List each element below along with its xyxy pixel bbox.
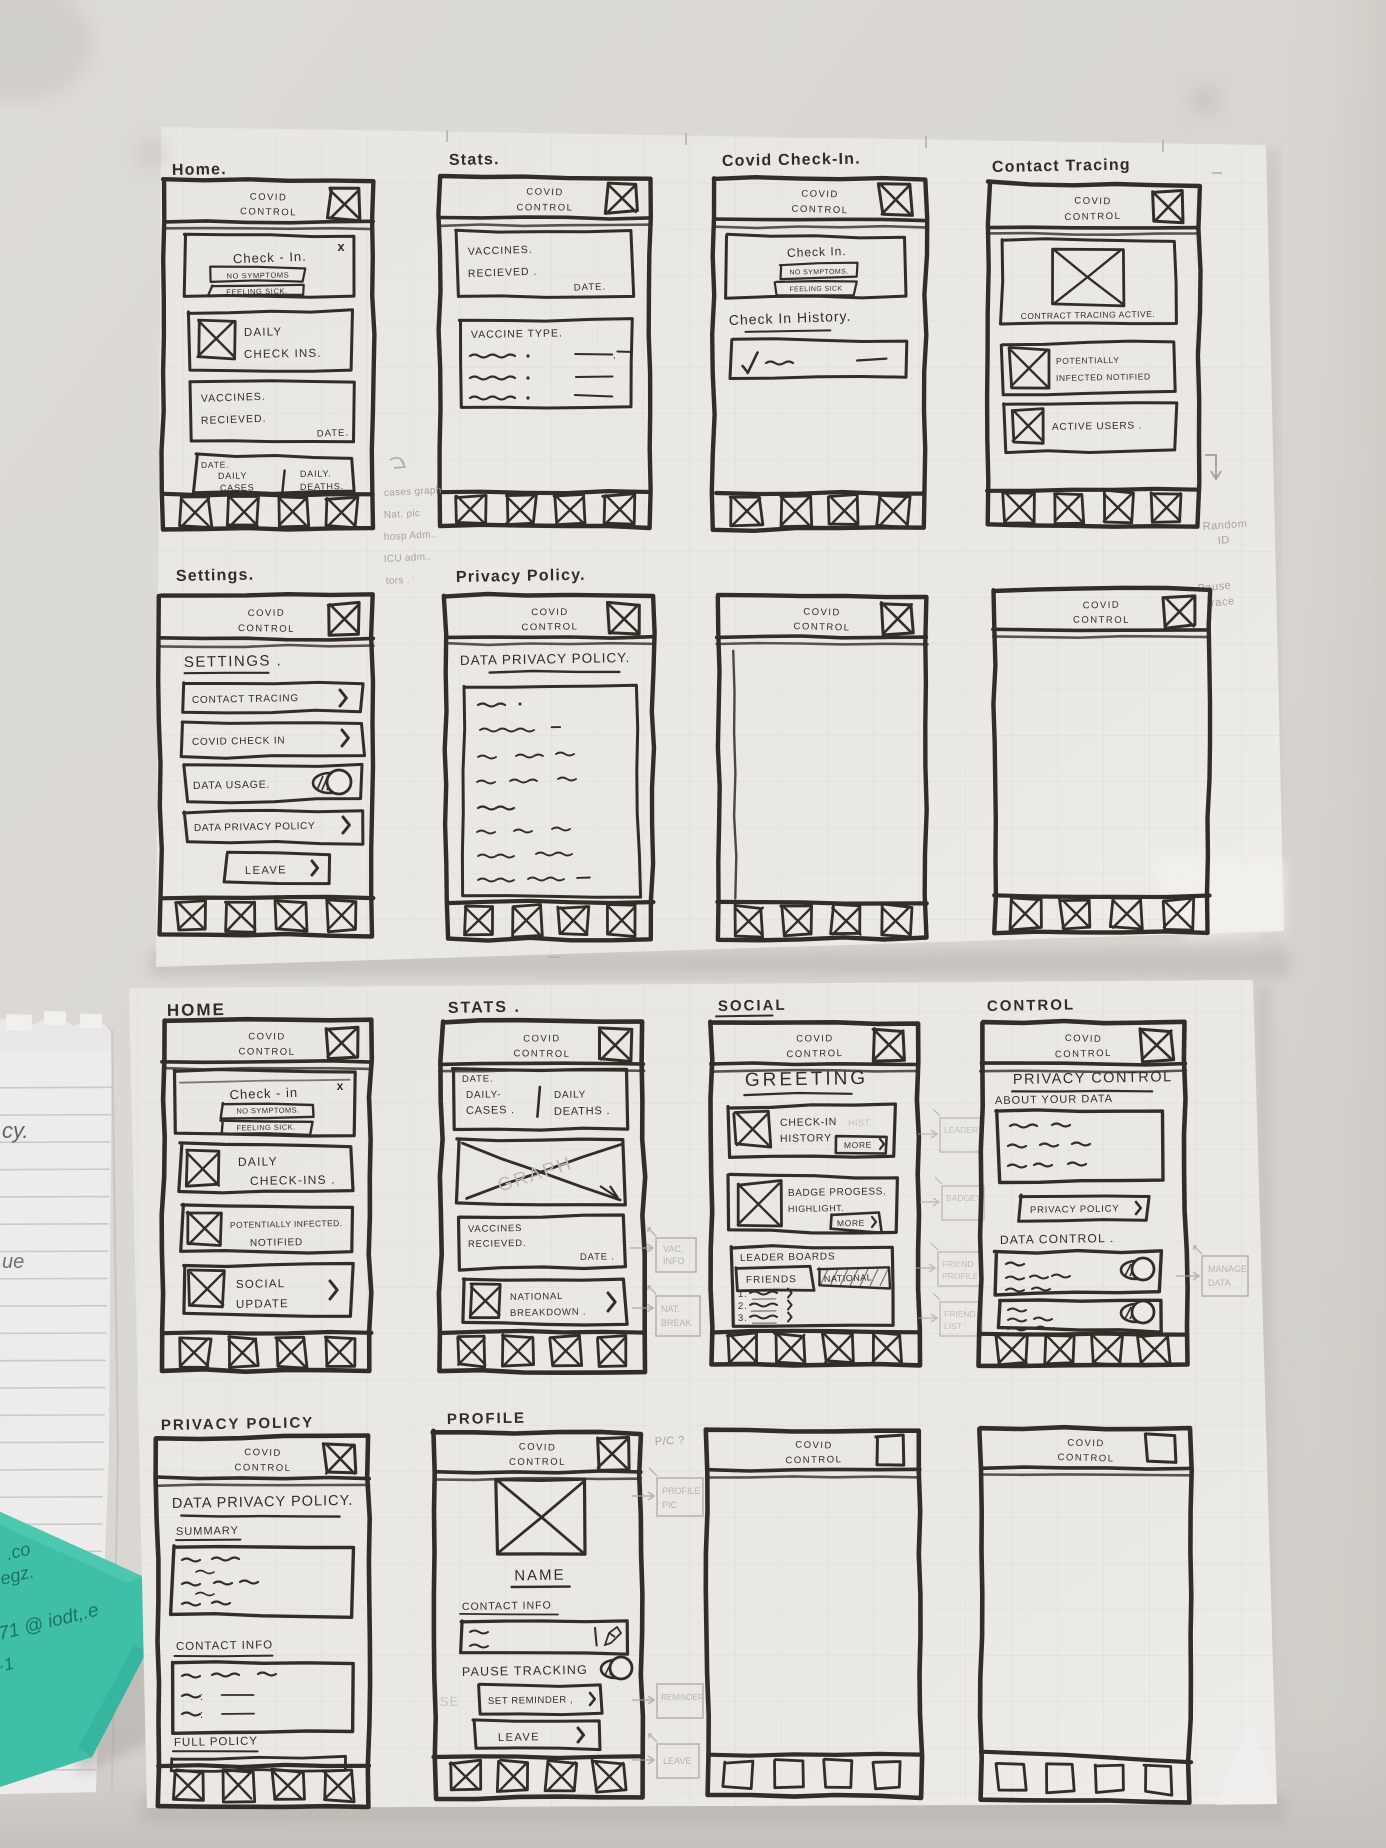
- svg-text:DATE.: DATE.: [317, 427, 350, 439]
- svg-text:Covid Check-In.: Covid Check-In.: [722, 151, 861, 170]
- svg-text:Check - in: Check - in: [229, 1085, 298, 1102]
- svg-text:CONTROL: CONTROL: [239, 1046, 296, 1057]
- svg-text:LEAVE: LEAVE: [498, 1731, 540, 1744]
- svg-text:CONTROL: CONTROL: [1073, 615, 1130, 626]
- svg-text:Check - In.: Check - In.: [233, 249, 307, 267]
- svg-text:PIC: PIC: [662, 1500, 678, 1510]
- svg-text:COVID: COVID: [803, 607, 841, 619]
- svg-text:COVID: COVID: [244, 1447, 282, 1459]
- svg-text:COVID: COVID: [796, 1033, 834, 1044]
- svg-text:ABOUT YOUR DATA: ABOUT YOUR DATA: [995, 1093, 1113, 1107]
- svg-text:NO SYMPTOMS.: NO SYMPTOMS.: [236, 1105, 299, 1115]
- svg-text:CONTROL: CONTROL: [786, 1048, 843, 1060]
- svg-text:NO SYMPTOMS: NO SYMPTOMS: [227, 270, 290, 280]
- svg-text:2.: 2.: [738, 1301, 748, 1312]
- svg-text:CASES .: CASES .: [466, 1104, 515, 1117]
- svg-text:BADGE PROGESS.: BADGE PROGESS.: [788, 1186, 887, 1199]
- svg-text:RECIEVED.: RECIEVED.: [468, 1238, 527, 1250]
- svg-text:CONTROL: CONTROL: [509, 1457, 566, 1468]
- svg-text:NOTIFIED: NOTIFIED: [250, 1237, 303, 1249]
- svg-text:STATS .: STATS .: [448, 999, 521, 1017]
- svg-text:PRIVACY POLICY: PRIVACY POLICY: [1030, 1203, 1120, 1216]
- svg-text:COVID: COVID: [519, 1441, 557, 1453]
- svg-text:MORE: MORE: [844, 1140, 872, 1150]
- svg-text:CONTROL: CONTROL: [1057, 1452, 1114, 1464]
- svg-text:COVID: COVID: [250, 191, 288, 203]
- svg-text:CONTACT INFO: CONTACT INFO: [176, 1639, 273, 1653]
- svg-text:COVID: COVID: [801, 188, 839, 200]
- svg-text:RECIEVED .: RECIEVED .: [468, 266, 538, 280]
- svg-text:CONTROL: CONTROL: [513, 1048, 570, 1060]
- svg-text:CONTROL: CONTROL: [517, 202, 574, 213]
- svg-text:FRIEND: FRIEND: [944, 1309, 976, 1319]
- svg-text:PROFILE: PROFILE: [447, 1410, 526, 1428]
- svg-text:CASES: CASES: [220, 482, 255, 493]
- svg-text:COVID: COVID: [795, 1439, 833, 1451]
- svg-text:DEATHS .: DEATHS .: [554, 1105, 611, 1118]
- svg-text:RECIEVED.: RECIEVED.: [201, 413, 267, 427]
- svg-text:DATE.: DATE.: [574, 281, 607, 293]
- svg-text:HIGHLIGHT.: HIGHLIGHT.: [788, 1203, 845, 1214]
- svg-text:CONTROL: CONTROL: [793, 621, 850, 633]
- svg-text:ACTIVE USERS .: ACTIVE USERS .: [1052, 420, 1142, 433]
- svg-text:CONTROL: CONTROL: [987, 996, 1075, 1015]
- svg-text:REMINDER: REMINDER: [661, 1693, 704, 1702]
- svg-text:SET REMINDER ,: SET REMINDER ,: [488, 1695, 573, 1707]
- svg-text:Settings.: Settings.: [176, 567, 255, 585]
- svg-text:LEAVE: LEAVE: [663, 1756, 691, 1766]
- svg-text:Contact Tracing: Contact Tracing: [992, 157, 1131, 176]
- svg-text:NAT.: NAT.: [661, 1304, 680, 1314]
- svg-text:HOME: HOME: [167, 1000, 226, 1020]
- svg-text:CONTROL: CONTROL: [1055, 1048, 1112, 1061]
- svg-text:DATA CONTROL .: DATA CONTROL .: [1000, 1231, 1115, 1247]
- svg-text:DAILY: DAILY: [238, 1154, 278, 1169]
- svg-text:3.: 3.: [738, 1313, 748, 1324]
- svg-text:COVID: COVID: [1074, 196, 1112, 208]
- svg-text:COVID: COVID: [1067, 1438, 1105, 1450]
- svg-text:COVID: COVID: [248, 1031, 286, 1042]
- svg-text:VACCINES.: VACCINES.: [201, 391, 266, 405]
- svg-text:DATA PRIVACY POLICY.: DATA PRIVACY POLICY.: [460, 650, 631, 668]
- svg-text:DATA PRIVACY POLICY: DATA PRIVACY POLICY: [194, 821, 315, 834]
- svg-text:BREAK: BREAK: [661, 1318, 692, 1328]
- svg-text:CONTROL: CONTROL: [1064, 211, 1121, 223]
- svg-text:HIST.: HIST.: [848, 1118, 873, 1128]
- svg-text:SE: SE: [440, 1694, 460, 1709]
- svg-text:SOCIAL: SOCIAL: [718, 997, 787, 1015]
- svg-text:PROFILE: PROFILE: [662, 1486, 701, 1496]
- svg-text:Stats.: Stats.: [449, 151, 500, 169]
- svg-text:DATA USAGE.: DATA USAGE.: [193, 779, 270, 792]
- svg-text:HISTORY: HISTORY: [780, 1132, 832, 1145]
- svg-text:DATE .: DATE .: [580, 1251, 615, 1263]
- svg-text:UPDATE: UPDATE: [236, 1298, 289, 1311]
- svg-text:CHECK-INS .: CHECK-INS .: [250, 1173, 336, 1188]
- svg-text:DATE.: DATE.: [201, 460, 230, 470]
- svg-text:DAILY.: DAILY.: [300, 468, 332, 479]
- svg-text:LIST: LIST: [944, 1321, 962, 1331]
- svg-text:PAUSE TRACKING: PAUSE TRACKING: [462, 1663, 588, 1679]
- svg-text:FEELING SICK: FEELING SICK: [789, 286, 842, 294]
- svg-text:DATE.: DATE.: [462, 1073, 493, 1085]
- svg-text:tors .: tors .: [386, 575, 411, 587]
- svg-text:FULL POLICY: FULL POLICY: [174, 1736, 258, 1749]
- svg-text:DAILY: DAILY: [218, 470, 248, 481]
- svg-text:CONTROL: CONTROL: [240, 206, 297, 218]
- svg-text:FRIENDS: FRIENDS: [746, 1274, 797, 1286]
- svg-text:x: x: [337, 239, 345, 254]
- svg-text:,: ,: [613, 350, 616, 360]
- svg-text:Check In.: Check In.: [787, 244, 847, 260]
- svg-text:COVID CHECK IN: COVID CHECK IN: [192, 735, 286, 748]
- svg-text:LEAVE: LEAVE: [245, 864, 287, 877]
- svg-text:DEATHS.: DEATHS.: [300, 481, 344, 492]
- svg-text:COVID: COVID: [523, 1033, 561, 1044]
- svg-text:DAILY: DAILY: [554, 1089, 586, 1101]
- svg-text:NATIONAL: NATIONAL: [824, 1272, 873, 1284]
- svg-text::: :: [200, 1691, 203, 1703]
- svg-text::: :: [200, 1709, 203, 1721]
- svg-text:P/C ?: P/C ?: [655, 1434, 686, 1448]
- svg-text:ue: ue: [2, 1251, 24, 1273]
- svg-text:COVID: COVID: [1083, 600, 1121, 612]
- svg-text:VACCINES.: VACCINES.: [468, 244, 533, 258]
- svg-text:NO SYMPTOMS.: NO SYMPTOMS.: [789, 268, 848, 276]
- svg-text:CHECK-IN: CHECK-IN: [780, 1116, 837, 1129]
- svg-text:LEADER BOARDS: LEADER BOARDS: [740, 1251, 836, 1264]
- svg-text:CONTROL: CONTROL: [785, 1454, 842, 1466]
- svg-text:PRIVACY CONTROL: PRIVACY CONTROL: [1013, 1069, 1173, 1088]
- svg-text:MANAGE: MANAGE: [1208, 1264, 1247, 1274]
- svg-text:CONTROL: CONTROL: [791, 204, 848, 217]
- svg-text:DATA PRIVACY POLICY.: DATA PRIVACY POLICY.: [172, 1493, 354, 1512]
- svg-text:NATIONAL: NATIONAL: [510, 1291, 563, 1303]
- svg-text:Home.: Home.: [172, 161, 227, 179]
- svg-text:CONTROL: CONTROL: [238, 623, 295, 635]
- svg-text:CONTROL: CONTROL: [234, 1462, 291, 1474]
- svg-text:FEELING SICK.: FEELING SICK.: [226, 286, 288, 296]
- svg-text:SUMMARY: SUMMARY: [176, 1525, 239, 1538]
- svg-text:VACCINES: VACCINES: [468, 1223, 522, 1235]
- svg-text:Privacy Policy.: Privacy Policy.: [456, 567, 586, 586]
- svg-text:SOCIAL: SOCIAL: [236, 1278, 286, 1291]
- svg-text:cy.: cy.: [2, 1118, 28, 1143]
- svg-text:COVID: COVID: [531, 607, 569, 618]
- svg-text:COVID: COVID: [1065, 1033, 1103, 1045]
- svg-text:CONTROL: CONTROL: [521, 621, 578, 633]
- svg-text:BREAKDOWN .: BREAKDOWN .: [510, 1307, 587, 1319]
- svg-text:VACCINE TYPE.: VACCINE TYPE.: [471, 327, 563, 341]
- svg-text:CONTACT INFO: CONTACT INFO: [462, 1599, 552, 1613]
- svg-text:INFO: INFO: [663, 1256, 685, 1266]
- svg-text:NAME: NAME: [514, 1567, 566, 1585]
- svg-text:x: x: [337, 1079, 344, 1093]
- svg-text:CHECK INS.: CHECK INS.: [244, 348, 322, 361]
- svg-text:DAILY-: DAILY-: [466, 1089, 502, 1101]
- svg-text:LEADER?: LEADER?: [944, 1125, 983, 1135]
- svg-text:VAC.: VAC.: [663, 1244, 683, 1254]
- svg-text:COVID: COVID: [248, 608, 286, 619]
- svg-text:PROFILE?: PROFILE?: [942, 1271, 983, 1281]
- svg-text:BADGE?: BADGE?: [946, 1193, 981, 1203]
- svg-text:SETTINGS .: SETTINGS .: [184, 652, 283, 671]
- svg-text:POTENTIALLY: POTENTIALLY: [1056, 355, 1120, 366]
- svg-text:COVID: COVID: [526, 186, 564, 198]
- svg-text:CONTACT TRACING: CONTACT TRACING: [192, 693, 299, 706]
- svg-text:ID: ID: [1217, 534, 1230, 547]
- svg-text:PRIVACY POLICY: PRIVACY POLICY: [161, 1414, 315, 1434]
- svg-text:GREETING: GREETING: [745, 1068, 869, 1091]
- svg-text:DAILY: DAILY: [244, 326, 283, 339]
- svg-text:POTENTIALLY INFECTED.: POTENTIALLY INFECTED.: [230, 1218, 343, 1230]
- svg-text:INFECTED NOTIFIED: INFECTED NOTIFIED: [1056, 371, 1151, 383]
- svg-text:1.: 1.: [738, 1289, 748, 1300]
- svg-text:MORE: MORE: [837, 1218, 865, 1228]
- svg-text:FRIEND: FRIEND: [942, 1259, 974, 1269]
- svg-text:FEELING SICK.: FEELING SICK.: [236, 1122, 295, 1132]
- svg-text:Nat. pic: Nat. pic: [384, 508, 421, 521]
- svg-text:DATA: DATA: [1208, 1278, 1231, 1288]
